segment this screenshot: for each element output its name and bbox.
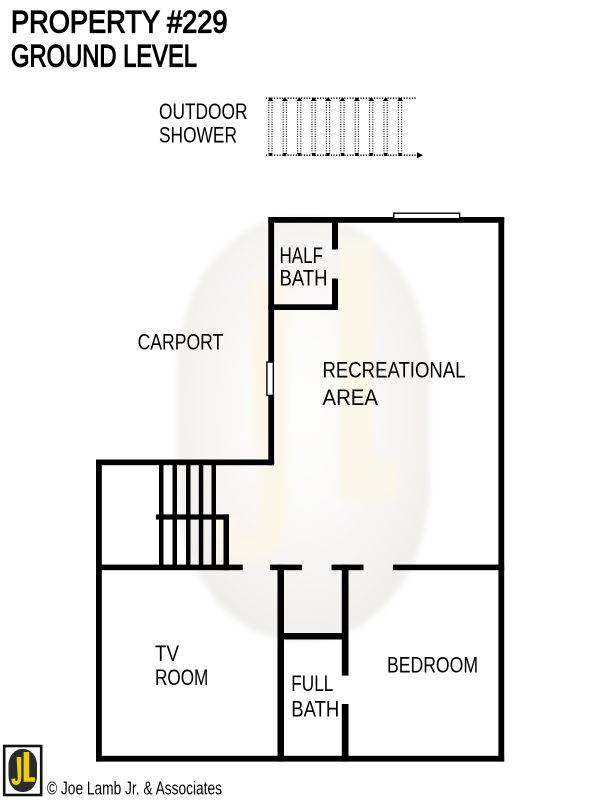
svg-text:FULL: FULL <box>291 671 333 696</box>
svg-text:HALF: HALF <box>280 243 324 268</box>
svg-text:PROPERTY #229: PROPERTY #229 <box>11 4 228 40</box>
svg-text:© Joe Lamb Jr. & Associates: © Joe Lamb Jr. & Associates <box>47 778 222 799</box>
svg-text:TV: TV <box>155 641 179 666</box>
svg-text:RECREATIONAL: RECREATIONAL <box>323 358 466 383</box>
svg-text:OUTDOOR: OUTDOOR <box>159 99 248 124</box>
svg-text:AREA: AREA <box>323 385 379 410</box>
svg-text:BATH: BATH <box>280 266 328 291</box>
svg-text:GROUND LEVEL: GROUND LEVEL <box>11 38 197 74</box>
svg-text:BEDROOM: BEDROOM <box>387 652 478 677</box>
svg-text:BATH: BATH <box>291 697 339 722</box>
svg-text:CARPORT: CARPORT <box>138 330 224 355</box>
svg-text:ROOM: ROOM <box>155 665 208 690</box>
svg-text:SHOWER: SHOWER <box>159 123 237 148</box>
